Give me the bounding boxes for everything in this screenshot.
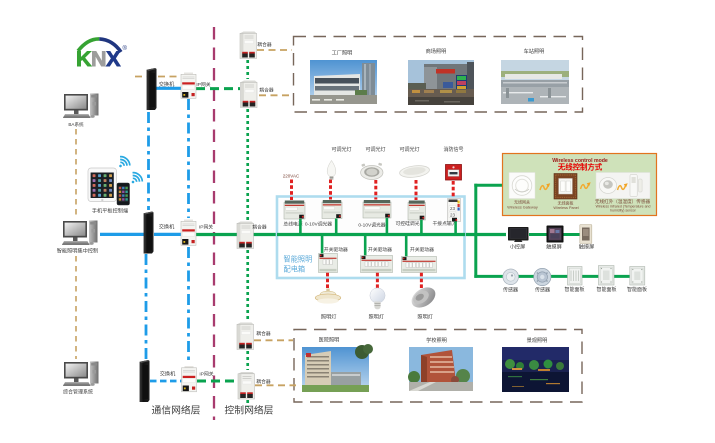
svg-text:触摸屏: 触摸屏 [546, 243, 562, 251]
svg-text:无线控制方式: 无线控制方式 [557, 163, 603, 172]
svg-text:交换机: 交换机 [160, 370, 176, 378]
svg-text:消防信号: 消防信号 [443, 146, 463, 153]
svg-text:可调光灯: 可调光灯 [399, 146, 419, 153]
svg-text:可调光灯: 可调光灯 [365, 146, 385, 153]
svg-text:照明灯: 照明灯 [417, 313, 433, 321]
svg-text:耦合器: 耦合器 [252, 223, 267, 230]
svg-text:23: 23 [450, 213, 456, 218]
svg-text:0-10V调光器: 0-10V调光器 [358, 221, 385, 228]
svg-text:可调光灯: 可调光灯 [331, 146, 351, 153]
svg-text:传感器: 传感器 [535, 287, 550, 294]
svg-text:humidity) sensor: humidity) sensor [610, 208, 637, 212]
svg-text:智能面板: 智能面板 [596, 286, 616, 293]
svg-text:IP网关: IP网关 [196, 81, 210, 88]
svg-text:学校照明: 学校照明 [426, 336, 447, 344]
svg-text:医院照明: 医院照明 [319, 336, 340, 344]
svg-text:Wireless Panel: Wireless Panel [553, 206, 578, 210]
svg-text:商场照明: 商场照明 [426, 47, 447, 55]
svg-text:220VAC: 220VAC [283, 174, 300, 179]
svg-text:BA系统: BA系统 [68, 121, 84, 128]
svg-text:开关驱动器: 开关驱动器 [368, 246, 392, 253]
svg-text:智能照明集中控制: 智能照明集中控制 [57, 247, 99, 255]
svg-text:手机平板控制端: 手机平板控制端 [92, 207, 128, 215]
svg-text:控制网络层: 控制网络层 [225, 404, 274, 417]
svg-text:开关驱动器: 开关驱动器 [410, 246, 434, 253]
svg-text:触摸屏: 触摸屏 [579, 243, 595, 251]
svg-text:耦合器: 耦合器 [257, 41, 272, 48]
svg-text:无线面板: 无线面板 [558, 200, 574, 206]
svg-text:照明灯: 照明灯 [369, 313, 385, 321]
svg-text:综合管理系统: 综合管理系统 [63, 389, 93, 396]
svg-text:交换机: 交换机 [159, 80, 175, 88]
svg-text:Wireless Gateway: Wireless Gateway [507, 205, 538, 209]
svg-text:®: ® [123, 45, 128, 52]
svg-text:小控屏: 小控屏 [510, 243, 526, 251]
svg-text:车站照明: 车站照明 [524, 47, 545, 55]
svg-text:景观照明: 景观照明 [527, 337, 548, 344]
svg-text:开关驱动器: 开关驱动器 [324, 246, 348, 253]
svg-text:传感器: 传感器 [503, 287, 518, 294]
svg-text:智能照明: 智能照明 [284, 255, 313, 264]
svg-text:智能面板: 智能面板 [564, 286, 584, 293]
svg-text:配电箱: 配电箱 [284, 265, 306, 274]
svg-text:可控硅调光: 可控硅调光 [396, 220, 420, 227]
svg-text:耦合器: 耦合器 [256, 330, 271, 337]
svg-text:无线网关: 无线网关 [514, 199, 530, 205]
svg-text:智能面板: 智能面板 [627, 286, 647, 293]
svg-text:工厂照明: 工厂照明 [332, 50, 353, 57]
svg-text:交换机: 交换机 [159, 222, 175, 230]
svg-text:耦合器: 耦合器 [259, 87, 274, 94]
svg-text:照明灯: 照明灯 [321, 313, 337, 321]
svg-text:IP网关: IP网关 [199, 371, 213, 378]
svg-text:干接点输入: 干接点输入 [433, 220, 457, 227]
svg-text:通信网络层: 通信网络层 [152, 404, 201, 417]
svg-text:IP网关: IP网关 [199, 223, 213, 230]
svg-text:23: 23 [450, 206, 456, 211]
svg-text:KNX: KNX [76, 47, 121, 71]
svg-text:0-10V调光器: 0-10V调光器 [305, 221, 332, 228]
svg-text:耦合器: 耦合器 [256, 378, 271, 385]
